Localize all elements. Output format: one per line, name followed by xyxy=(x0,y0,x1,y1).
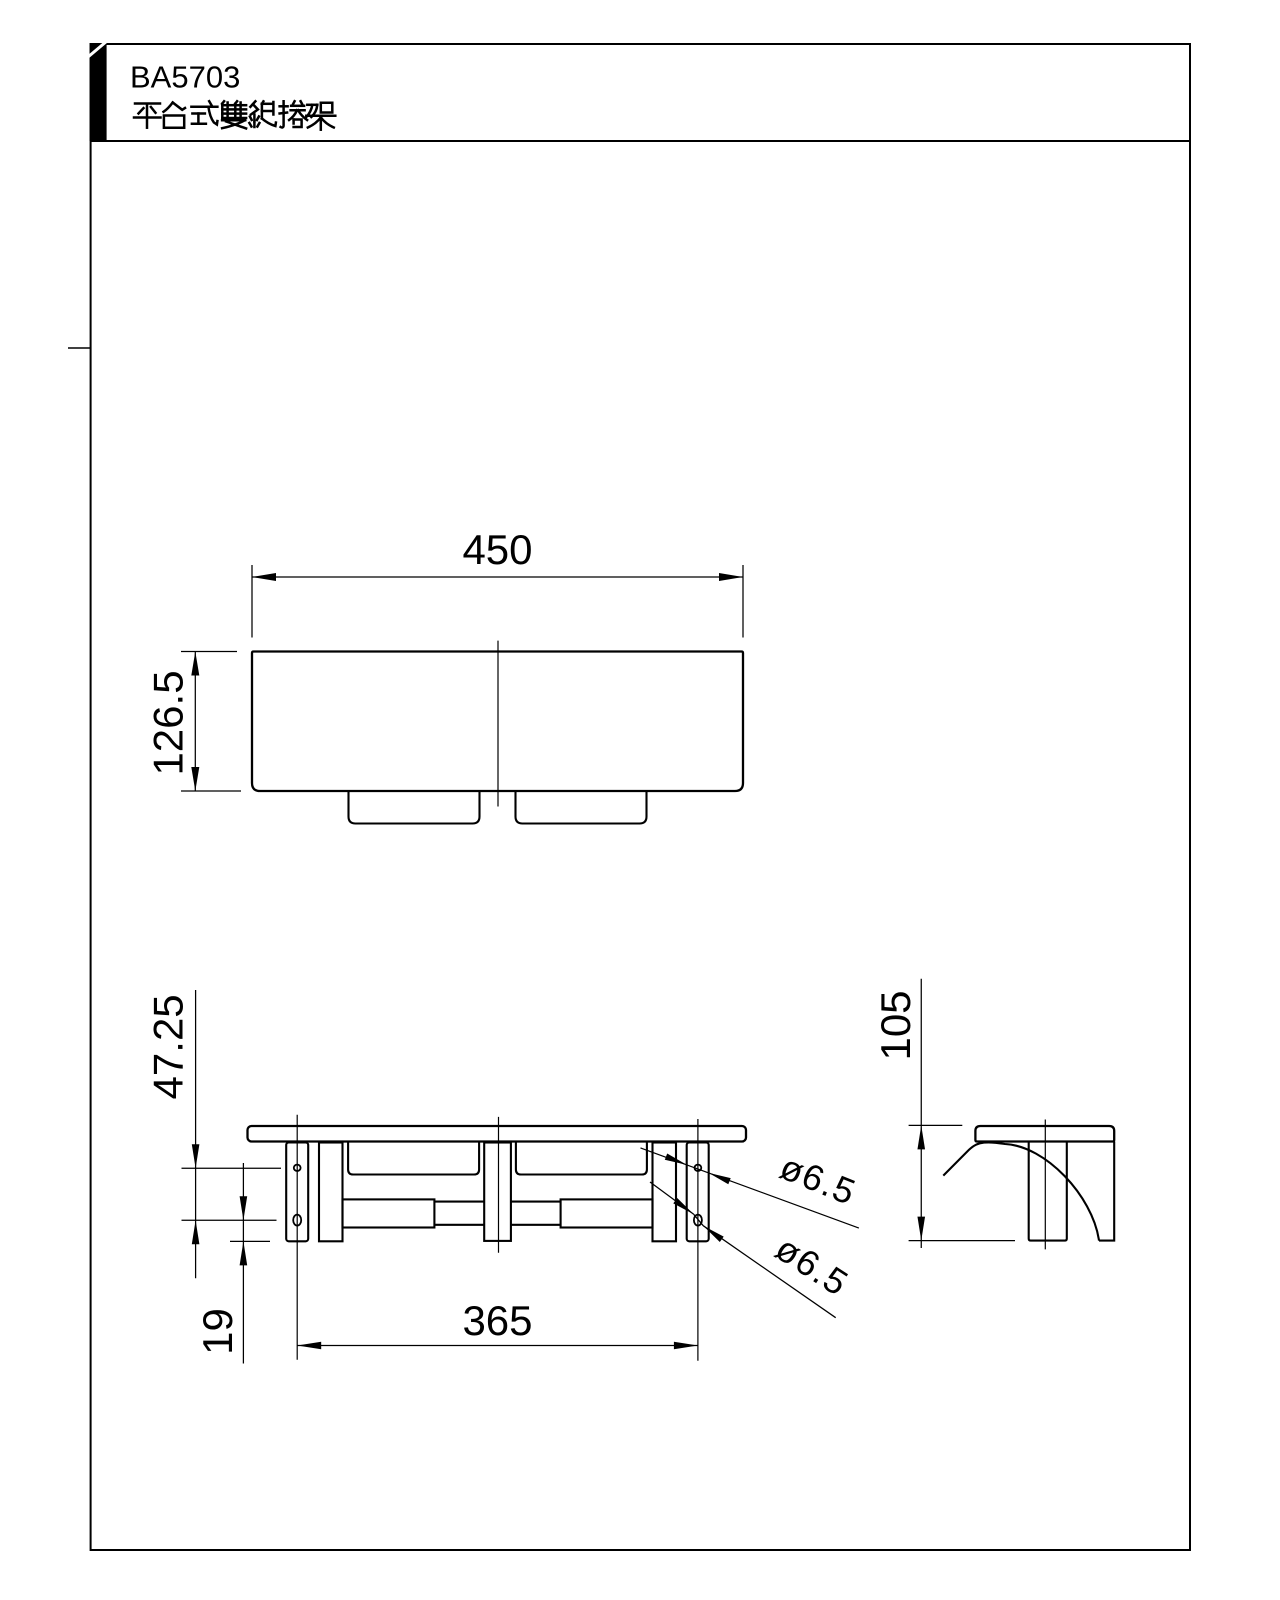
svg-text:BA5703: BA5703 xyxy=(130,59,240,94)
svg-text:365: 365 xyxy=(462,1297,532,1344)
svg-text:126.5: 126.5 xyxy=(144,670,191,775)
svg-text:19: 19 xyxy=(194,1308,241,1355)
svg-text:105: 105 xyxy=(872,990,919,1060)
svg-text:47.25: 47.25 xyxy=(144,994,191,1099)
svg-text:450: 450 xyxy=(462,526,532,573)
